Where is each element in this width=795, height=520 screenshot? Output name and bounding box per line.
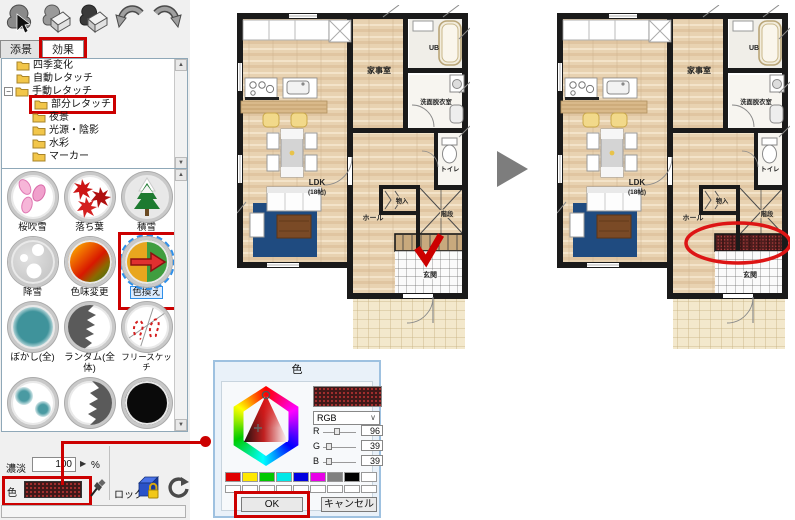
tree-item-shudou[interactable]: − 手動レタッチ — [2, 85, 187, 98]
green-value-input[interactable]: 39 — [361, 440, 383, 451]
room-label: トイレ — [761, 165, 780, 173]
black-fill-icon — [122, 378, 172, 428]
tab-effect[interactable]: 効果 — [42, 40, 84, 58]
room-label: 家事室 — [367, 65, 391, 75]
status-bar — [1, 505, 186, 518]
palette-color[interactable] — [344, 472, 360, 482]
palette-color[interactable] — [310, 472, 326, 482]
room-label: 階段 — [441, 209, 454, 218]
recolor-icon — [122, 237, 172, 287]
effect-random[interactable]: ランダム(全体) — [61, 299, 118, 375]
ok-button[interactable]: OK — [241, 497, 303, 512]
room-label: LDK — [309, 178, 326, 187]
effect-partial-random[interactable] — [61, 375, 118, 428]
palette-color[interactable] — [361, 472, 377, 482]
random-all-icon — [65, 302, 115, 352]
tree-item-shiki[interactable]: 四季変化 — [2, 59, 187, 72]
lock-icon[interactable] — [137, 474, 161, 500]
palette-color[interactable] — [327, 472, 343, 482]
custom-palette — [225, 485, 377, 493]
effect-sketch[interactable]: フリースケッチ — [118, 299, 175, 375]
folder-icon — [32, 125, 46, 136]
refresh-icon[interactable] — [166, 476, 190, 500]
custom-color-cell[interactable] — [259, 485, 275, 493]
tree-expander-icon[interactable]: − — [4, 87, 13, 96]
free-sketch-icon — [122, 302, 172, 352]
category-tree: 四季変化 自動レタッチ − 手動レタッチ 部分レタッチ 夜景 光源・陰影 水 — [1, 58, 188, 170]
tree-item-marker[interactable]: マーカー — [2, 150, 187, 163]
redo-icon[interactable] — [148, 2, 185, 38]
tree-item-kougen[interactable]: 光源・陰影 — [2, 124, 187, 137]
tint-change-icon — [65, 237, 115, 287]
red-value-input[interactable]: 96 — [361, 425, 383, 436]
red-slider-row: R 96 — [313, 426, 383, 438]
fallen-leaves-icon — [65, 172, 115, 222]
folder-icon — [32, 112, 46, 123]
palette-color[interactable] — [293, 472, 309, 482]
tab-bar: 添景 効果 — [0, 40, 190, 58]
dialog-body: RGB∨ R 96 G 39 B 39 — [221, 381, 373, 511]
steps-before — [395, 234, 463, 251]
connector-line — [61, 441, 203, 444]
room-label: 洗面脱衣室 — [420, 97, 452, 106]
folder-icon — [16, 73, 30, 84]
green-slider-thumb[interactable] — [326, 443, 332, 450]
effect-partial-blur[interactable] — [4, 375, 61, 428]
color-mode-select[interactable]: RGB∨ — [313, 411, 380, 425]
scroll-down-icon[interactable]: ▼ — [175, 419, 187, 431]
folder-icon — [16, 60, 30, 71]
blue-value-input[interactable]: 39 — [361, 455, 383, 466]
sakura-petals-icon — [8, 172, 58, 222]
effect-iromi[interactable]: 色味変更 — [61, 234, 118, 299]
effect-options: 濃淡 100 ▶ % 色 ロック — [0, 436, 190, 506]
custom-color-cell[interactable] — [242, 485, 258, 493]
tree-select-icon[interactable] — [0, 2, 37, 38]
gallery-scrollbar[interactable]: ▲ ▼ — [174, 169, 187, 431]
floorplan-before: 家事室 UB 洗面脱衣室 トイレ LDK (18帖) ホール 物入 階段 玄関 — [237, 5, 470, 360]
custom-color-cell[interactable] — [310, 485, 326, 493]
tree-item-yakei[interactable]: 夜景 — [2, 111, 187, 124]
effect-ochiba[interactable]: 落ち葉 — [61, 169, 118, 234]
room-label: (18帖) — [308, 187, 326, 196]
custom-color-cell[interactable] — [276, 485, 292, 493]
room-label: ホール — [363, 214, 384, 222]
scroll-up-icon[interactable]: ▲ — [175, 59, 187, 71]
snow-tree-icon — [122, 172, 172, 222]
effect-sekisetsu[interactable]: 積雪 — [118, 169, 175, 234]
effect-bokashi[interactable]: ぼかし(全) — [4, 299, 61, 375]
color-label: 色 — [7, 484, 17, 499]
spinner-icon[interactable]: ▶ — [80, 459, 86, 468]
undo-icon[interactable] — [111, 2, 148, 38]
room-label: (18帖) — [628, 187, 646, 196]
custom-color-cell[interactable] — [361, 485, 377, 493]
effect-kousetsu[interactable]: 降雪 — [4, 234, 61, 299]
tree-item-jidou[interactable]: 自動レタッチ — [2, 72, 187, 85]
folder-icon — [32, 138, 46, 149]
color-dialog: 色 RGB∨ — [213, 360, 381, 518]
basic-palette — [225, 472, 377, 482]
room-label: UB — [429, 45, 439, 52]
room-label: 家事室 — [687, 65, 711, 75]
effect-gallery: 桜吹雪 落ち葉 — [1, 168, 188, 432]
snowfall-icon — [8, 237, 58, 287]
selected-color-preview — [313, 386, 382, 407]
red-slider-thumb[interactable] — [334, 428, 340, 435]
chevron-down-icon: ∨ — [370, 412, 376, 424]
palette-color[interactable] — [242, 472, 258, 482]
connector-dot — [200, 436, 211, 447]
room-label: UB — [749, 45, 759, 52]
palette-color[interactable] — [259, 472, 275, 482]
room-label: 物入 — [716, 196, 729, 205]
density-input[interactable]: 100 — [32, 457, 76, 472]
eyedropper-icon[interactable] — [88, 478, 106, 498]
custom-color-cell[interactable] — [344, 485, 360, 493]
custom-color-cell[interactable] — [293, 485, 309, 493]
color-hexagon[interactable] — [230, 386, 302, 466]
scroll-up-icon[interactable]: ▲ — [175, 169, 187, 181]
blur-all-icon — [8, 302, 58, 352]
tab-scenery[interactable]: 添景 — [0, 40, 42, 58]
random-partial-icon — [65, 378, 115, 428]
folder-icon — [15, 86, 29, 97]
room-label: 階段 — [761, 209, 774, 218]
cancel-button[interactable]: キャンセル — [321, 497, 377, 512]
dialog-title: 色 — [215, 362, 379, 379]
blue-slider-thumb[interactable] — [326, 458, 332, 465]
custom-color-cell[interactable] — [225, 485, 241, 493]
tree-item-bubun[interactable]: 部分レタッチ — [2, 98, 187, 111]
room-label: ホール — [683, 214, 704, 222]
room-label: 玄関 — [423, 270, 437, 279]
green-slider-row: G 39 — [313, 441, 383, 453]
folder-icon — [32, 151, 46, 162]
room-label: 物入 — [396, 196, 409, 205]
effect-black[interactable] — [118, 375, 175, 428]
transition-arrow-icon — [497, 151, 528, 187]
steps-after — [715, 234, 783, 251]
current-color-swatch[interactable] — [24, 481, 82, 498]
room-label: 玄関 — [743, 270, 757, 279]
percent-label: % — [91, 460, 100, 471]
floorplan-after: 家事室 UB 洗面脱衣室 トイレ LDK (18帖) ホール 物入 階段 玄関 — [557, 5, 790, 360]
effect-irokae[interactable]: 色換え — [118, 234, 175, 299]
room-label: 洗面脱衣室 — [740, 97, 772, 106]
density-label: 濃淡 — [6, 460, 26, 475]
blue-slider-row: B 39 — [313, 456, 383, 468]
palette-color[interactable] — [225, 472, 241, 482]
room-label: トイレ — [441, 165, 460, 173]
bubun-annotation: 部分レタッチ — [32, 98, 113, 111]
effect-sakura[interactable]: 桜吹雪 — [4, 169, 61, 234]
connector-line — [61, 443, 64, 485]
tree-scrollbar[interactable]: ▲ ▼ — [174, 59, 187, 169]
retouch-apply-icon[interactable] — [74, 2, 111, 38]
blur-partial-icon — [8, 378, 58, 428]
toolbar — [0, 0, 190, 40]
folder-icon — [34, 99, 48, 110]
palette-color[interactable] — [276, 472, 292, 482]
custom-color-cell[interactable] — [327, 485, 343, 493]
retouch-eraser-icon[interactable] — [37, 2, 74, 38]
room-label: LDK — [629, 178, 646, 187]
tree-item-suisai[interactable]: 水彩 — [2, 137, 187, 150]
